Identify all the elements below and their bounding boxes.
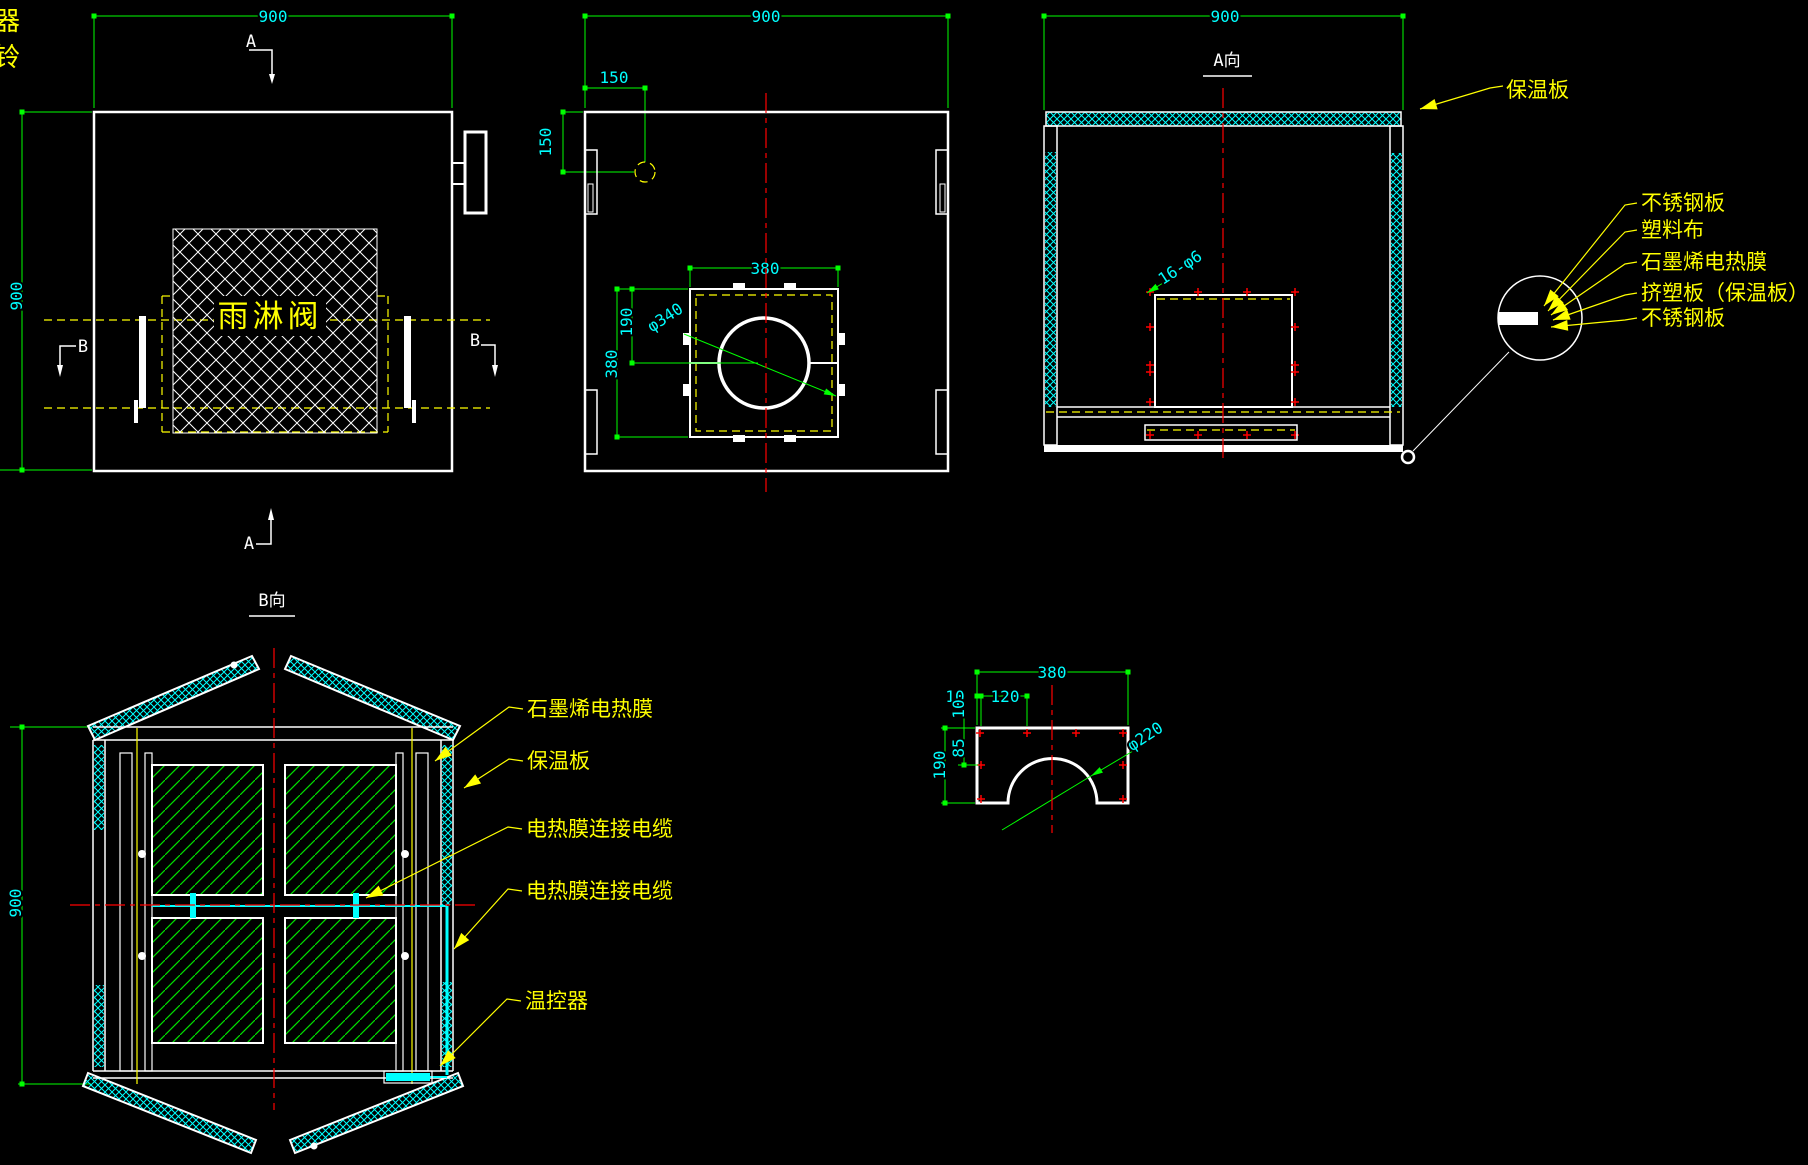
aview-title: A向 <box>1213 51 1240 71</box>
background <box>0 0 1808 1165</box>
layer-label-4: 挤塑板（保温板） <box>1641 281 1808 305</box>
insulation-label: 保温板 <box>1506 78 1569 102</box>
top-dim-width: 900 <box>752 7 781 26</box>
flange-dim-pitch: 120 <box>991 687 1020 706</box>
heating-film-panel <box>152 918 263 1043</box>
thermostat-label: 温控器 <box>525 989 588 1013</box>
aview-dim-width: 900 <box>1211 7 1240 26</box>
svg-text:A: A <box>246 32 256 52</box>
layer-label-1: 不锈钢板 <box>1641 191 1725 215</box>
svg-text:B: B <box>470 331 480 351</box>
film-label: 石墨烯电热膜 <box>527 697 653 721</box>
svg-text:B: B <box>78 337 88 357</box>
heating-film-panel <box>285 918 396 1043</box>
layer-label-3: 石墨烯电热膜 <box>1641 250 1767 274</box>
heating-film-panel <box>285 765 396 895</box>
layer-label-2: 塑料布 <box>1641 218 1704 242</box>
cable-label-top: 电热膜连接电缆 <box>526 817 673 841</box>
top-dim-opening-w: 380 <box>751 259 780 278</box>
layer-label-5: 不锈钢板 <box>1641 306 1725 330</box>
right-insulation-strip <box>1391 153 1402 407</box>
cable-label-bottom: 电热膜连接电缆 <box>526 879 673 903</box>
valve-label: 雨淋阀 <box>218 299 323 335</box>
top-dim-offset-x: 150 <box>600 68 629 87</box>
left-insulation-strip <box>1045 152 1056 407</box>
cad-drawing-canvas[interactable]: 器 铃 900 900 雨淋阀 <box>0 0 1808 1165</box>
flange-dim-row: 85 <box>949 738 968 757</box>
top-dim-half: 190 <box>617 308 636 337</box>
front-dim-width: 900 <box>259 7 288 26</box>
clipped-label-top: 器 <box>0 7 20 37</box>
front-dim-height: 900 <box>7 282 26 311</box>
bview-dim-height: 900 <box>6 889 25 918</box>
top-dim-offset-y: 150 <box>536 128 555 157</box>
bview-title: B向 <box>258 591 285 611</box>
flange-dim-top: 10 <box>949 699 968 718</box>
insulation-label: 保温板 <box>527 749 590 773</box>
cad-drawing: 器 铃 900 900 雨淋阀 <box>0 0 1808 1165</box>
flange-dim-height: 190 <box>930 751 949 780</box>
svg-text:A: A <box>244 534 254 554</box>
clipped-label-bottom: 铃 <box>0 43 20 73</box>
top-dim-opening-h: 380 <box>602 350 621 379</box>
flange-dim-width: 380 <box>1038 663 1067 682</box>
layer-stack-section <box>1498 312 1538 325</box>
heating-film-panel <box>152 765 263 895</box>
